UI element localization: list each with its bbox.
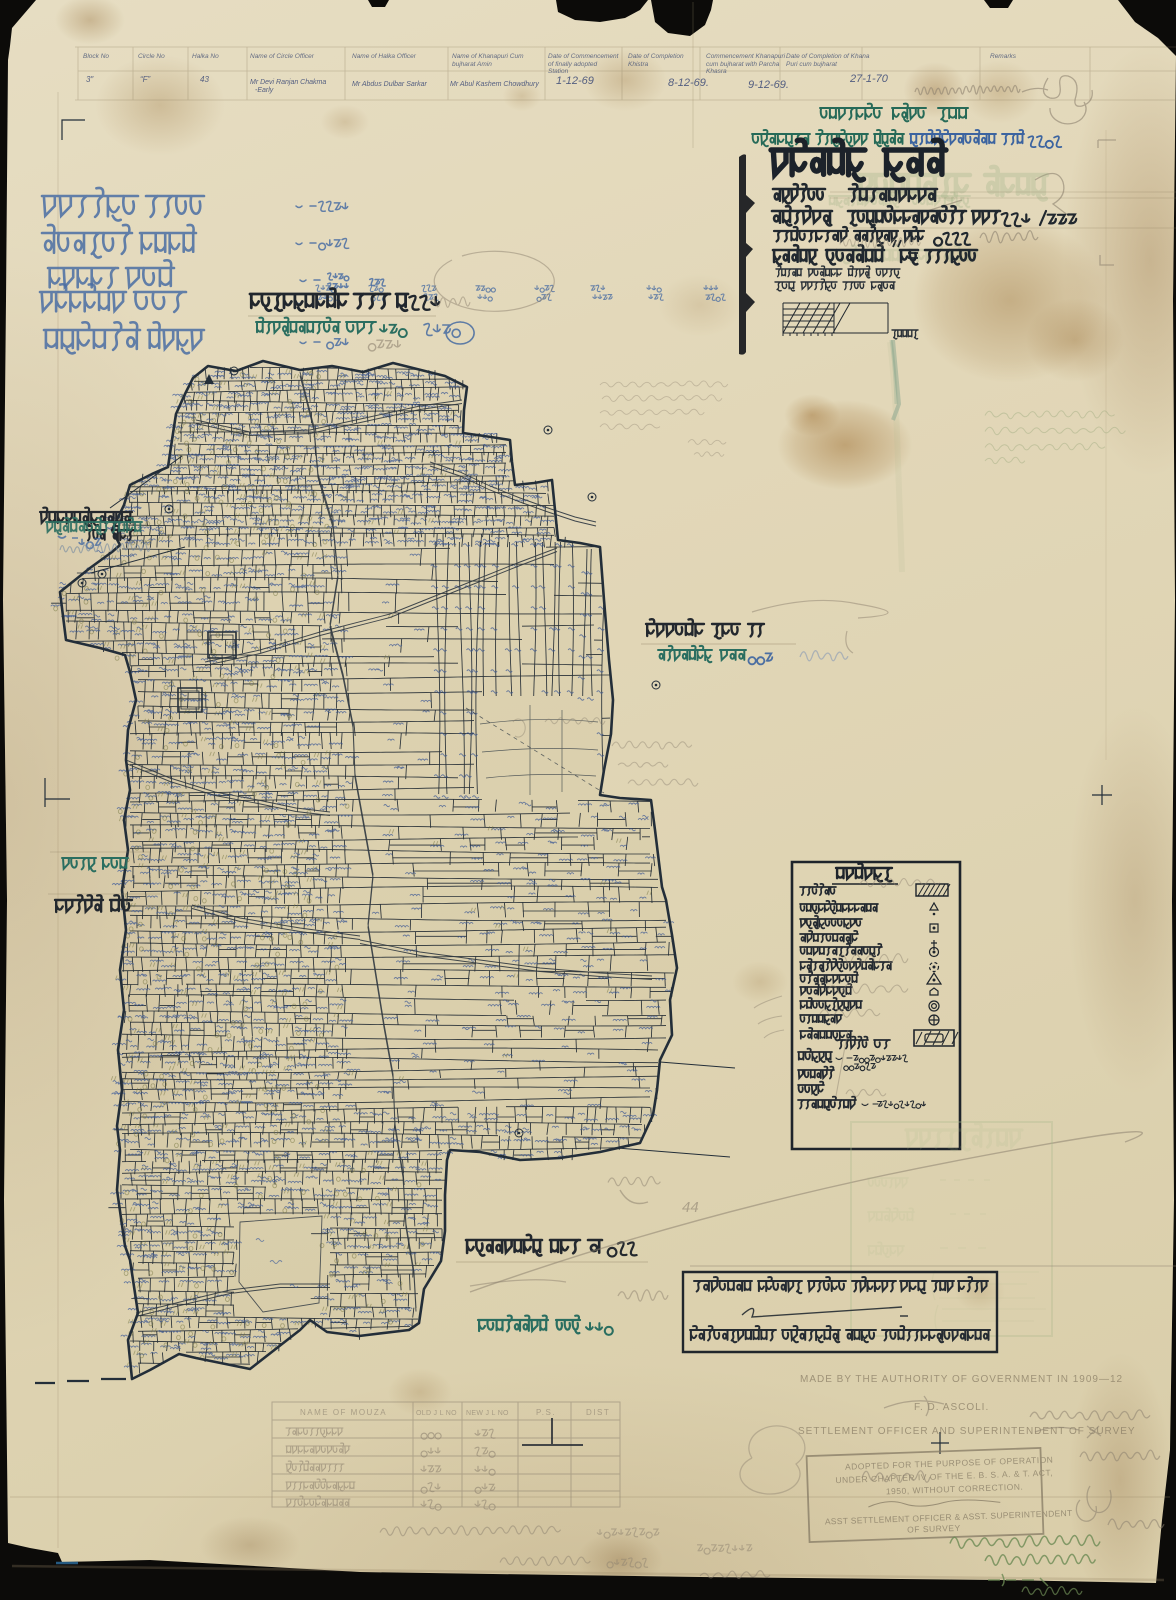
svg-text:“F”: “F” — [140, 75, 151, 84]
svg-text:Mr Abdus Dulbar Sarkar: Mr Abdus Dulbar Sarkar — [352, 81, 427, 88]
svg-text:SETTLEMENT OFFICER AND SUPERIN: SETTLEMENT OFFICER AND SUPERINTENDENT OF… — [798, 1426, 1136, 1437]
svg-text:Date of Completion: Date of Completion — [628, 53, 684, 60]
svg-text:Name of Halka Officer: Name of Halka Officer — [352, 53, 417, 60]
svg-text:cum bujharat with Parcha: cum bujharat with Parcha — [706, 61, 780, 68]
svg-text:Name of Khanapuri Cum: Name of Khanapuri Cum — [452, 53, 524, 60]
svg-text:F. D. ASCOLI.: F. D. ASCOLI. — [914, 1402, 989, 1413]
svg-text:OLD J L NO: OLD J L NO — [416, 1410, 457, 1417]
svg-text:OF SURVEY: OF SURVEY — [907, 1523, 961, 1535]
svg-text:43: 43 — [200, 75, 209, 84]
svg-text:bujharat Amin: bujharat Amin — [452, 61, 492, 68]
svg-text:Puri cum bujharat: Puri cum bujharat — [786, 61, 838, 68]
svg-text:Mr Devi Ranjan Chakma: Mr Devi Ranjan Chakma — [250, 79, 326, 86]
svg-text:Date of Completion of Khana: Date of Completion of Khana — [786, 53, 870, 60]
svg-text:Station: Station — [548, 68, 569, 75]
svg-text:44: 44 — [682, 1199, 699, 1216]
svg-text:P.S.: P.S. — [536, 1408, 556, 1417]
svg-text:NAME OF MOUZA: NAME OF MOUZA — [300, 1408, 387, 1417]
svg-text:Circle No: Circle No — [138, 53, 165, 60]
svg-text:Name of Circle Officer: Name of Circle Officer — [250, 53, 315, 60]
svg-text:Khistra: Khistra — [628, 61, 649, 68]
svg-text:Block No: Block No — [83, 53, 109, 60]
svg-text:DIST: DIST — [586, 1408, 610, 1417]
svg-text:Remarks: Remarks — [990, 53, 1017, 60]
svg-text:Commencement Khanapuri: Commencement Khanapuri — [706, 53, 786, 60]
svg-text:of finally adopted: of finally adopted — [548, 61, 598, 68]
svg-text:Halka No: Halka No — [192, 53, 219, 60]
svg-text:27-1-70: 27-1-70 — [849, 73, 889, 85]
svg-text:9-12-69.: 9-12-69. — [748, 79, 789, 91]
svg-text:Khasra: Khasra — [706, 68, 727, 75]
svg-text:MADE BY THE AUTHORITY OF GOVER: MADE BY THE AUTHORITY OF GOVERNMENT IN 1… — [800, 1374, 1123, 1385]
svg-text:-Early: -Early — [255, 87, 274, 94]
svg-text:Date of Commencement: Date of Commencement — [548, 53, 620, 60]
svg-text:1-12-69: 1-12-69 — [556, 75, 594, 87]
svg-text:8-12-69.: 8-12-69. — [668, 77, 709, 89]
svg-text:3″: 3″ — [86, 75, 94, 84]
svg-text:NEW J L NO: NEW J L NO — [466, 1410, 509, 1417]
svg-text:Mr Abul Kashem Chowdhury: Mr Abul Kashem Chowdhury — [450, 81, 539, 88]
svg-text:1950, WITHOUT CORRECTION.: 1950, WITHOUT CORRECTION. — [886, 1482, 1024, 1497]
